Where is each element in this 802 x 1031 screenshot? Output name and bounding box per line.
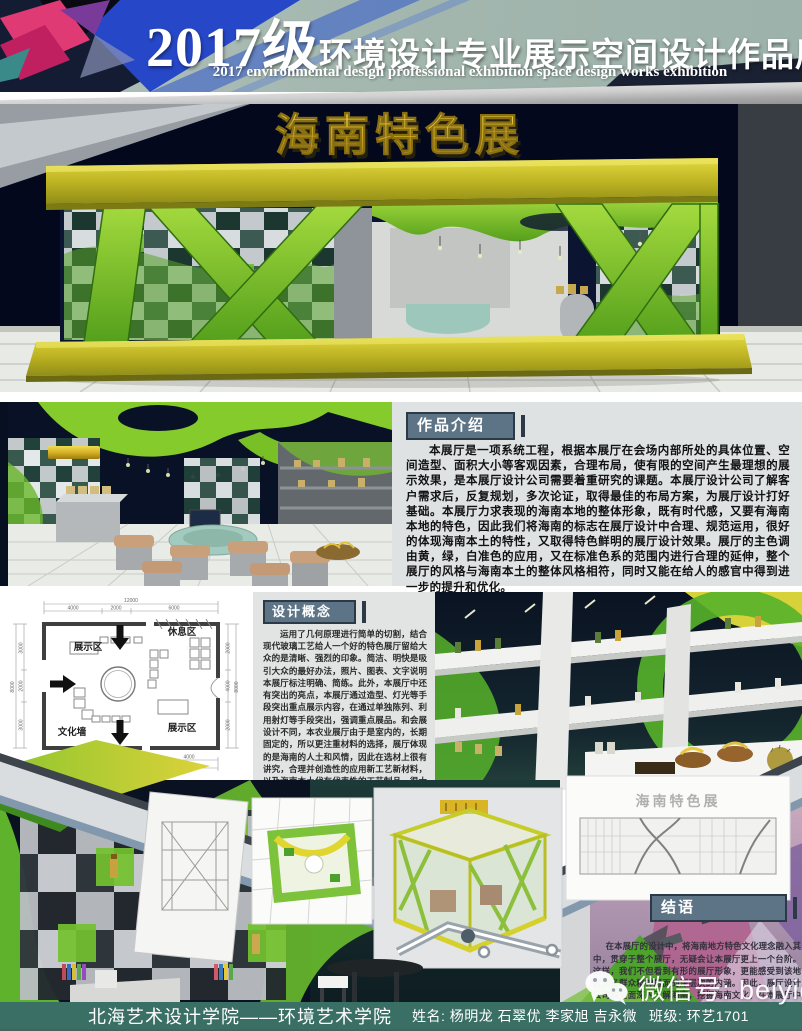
svg-text:6000: 6000 [168, 606, 179, 612]
svg-text:4000: 4000 [183, 755, 194, 761]
conclusion-title-badge: 结语 [650, 894, 787, 922]
svg-text:2000: 2000 [19, 680, 25, 691]
plan-label-rest: 休息区 [167, 626, 197, 638]
wechat-watermark: 微信号: beiyigw [584, 968, 802, 1007]
intro-badge-accent-bar [521, 415, 525, 437]
svg-text:12000: 12000 [124, 598, 138, 604]
wechat-id-text: 微信号: beiyigw [638, 968, 802, 1007]
concept-title-badge: 设计概念 [263, 600, 356, 624]
svg-text:3000: 3000 [19, 719, 25, 730]
svg-text:2000: 2000 [226, 642, 232, 653]
team-names: 姓名: 杨明龙 石翠优 李家旭 吉永微 [412, 1006, 637, 1026]
exterior-render-graphic: 海南特色展 海南特色展 [0, 104, 802, 392]
svg-text:2000: 2000 [226, 719, 232, 730]
plan-label-exhibit-2: 展示区 [168, 723, 197, 734]
sketch-thumb-elevation: 海南特色展 [566, 776, 790, 900]
conclusion-header: 结语 [650, 894, 797, 922]
svg-text:12000: 12000 [124, 763, 138, 769]
interior-render-graphic [8, 402, 392, 586]
svg-text:6000: 6000 [81, 755, 92, 761]
svg-text:2000: 2000 [139, 755, 150, 761]
plan-label-exhibit-1: 展示区 [74, 642, 103, 653]
plan-label-culture-wall: 文化墙 [57, 726, 87, 738]
band-chevron-circles [398, 926, 560, 957]
sketch-thumb-1 [134, 792, 248, 962]
svg-text:8000: 8000 [10, 681, 16, 692]
concept-body: 运用了几何原理进行简单的切割，结合现代玻璃工艺给人一个好的特色展厅留给大众的是清… [263, 628, 427, 813]
interior-render [0, 402, 392, 586]
shelf-items [62, 854, 260, 980]
shelves-render [435, 592, 802, 790]
school-name: 北海艺术设计学院——环境艺术学院 [88, 1003, 392, 1029]
concept-badge-accent-bar [362, 601, 366, 623]
header: 2017级环境设计专业展示空间设计作品展 2017 environmental … [0, 0, 802, 92]
intro-body: 本展厅是一项系统工程，根据本展厅在会场内部所处的具体位置、空间造型、面积大小等客… [406, 444, 790, 596]
svg-text:4000: 4000 [226, 680, 232, 691]
svg-text:3000: 3000 [19, 642, 25, 653]
sign-text: 海南特色展 [275, 111, 525, 160]
class-name: 班级: 环艺1701 [649, 1006, 749, 1026]
render-thumb-wireframe [374, 788, 562, 968]
floor-plan-graphic: 展示区 休息区 文化墙 展示区 12000 [0, 592, 253, 790]
section-intro: 作品介绍 本展厅是一项系统工程，根据本展厅在会场内部所处的具体位置、空间造型、面… [0, 402, 802, 586]
shelves-render-graphic [435, 592, 802, 790]
svg-text:4000: 4000 [67, 606, 78, 612]
wechat-icon [584, 969, 630, 1007]
exterior-render: 海南特色展 海南特色展 [0, 104, 802, 392]
sketch-caption-text: 海南特色展 [636, 793, 721, 809]
shelf-wall-render [0, 780, 560, 1003]
intro-panel: 作品介绍 本展厅是一项系统工程，根据本展厅在会场内部所处的具体位置、空间造型、面… [392, 402, 802, 586]
svg-text:8000: 8000 [234, 681, 240, 692]
render-thumb-axon [252, 798, 372, 924]
floor-plan: 展示区 休息区 文化墙 展示区 12000 [0, 592, 253, 790]
conclusion-badge-accent-bar [793, 897, 797, 919]
poster-root: 2017级环境设计专业展示空间设计作品展 2017 environmental … [0, 0, 802, 1031]
concept-panel: 设计概念 运用了几何原理进行简单的切割，结合现代玻璃工艺给人一个好的特色展厅留给… [253, 592, 435, 790]
section-concept: 展示区 休息区 文化墙 展示区 12000 [0, 592, 802, 790]
svg-text:2000: 2000 [110, 606, 121, 612]
intro-title-badge: 作品介绍 [406, 412, 515, 440]
subtitle-english: 2017 environmental design professional e… [150, 64, 790, 81]
